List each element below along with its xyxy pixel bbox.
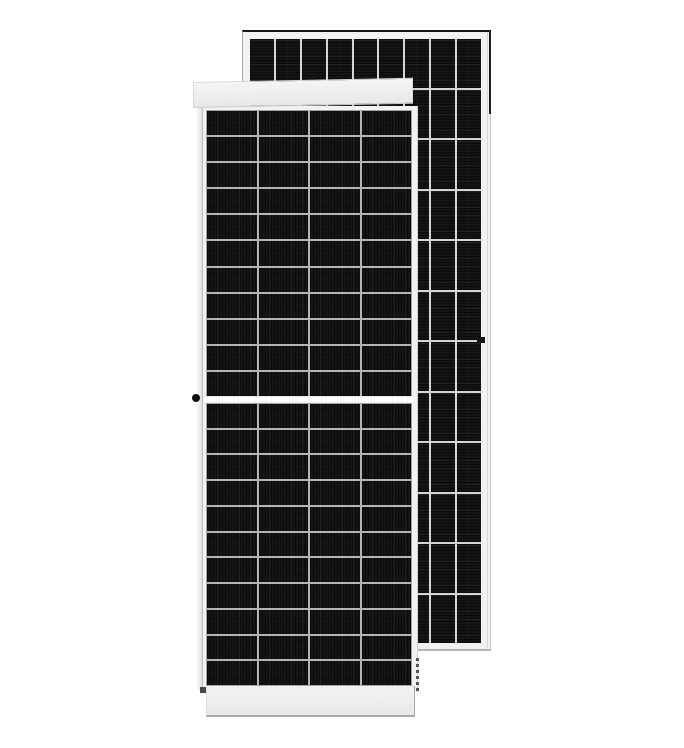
solar-cell (259, 268, 309, 292)
solar-cell (207, 372, 257, 396)
solar-cell (362, 404, 412, 428)
solar-cell (310, 294, 360, 318)
solar-cell (259, 241, 309, 265)
solar-cell (362, 241, 412, 265)
solar-cell (207, 636, 257, 660)
solar-cell (310, 346, 360, 370)
solar-cell (362, 558, 412, 582)
solar-cell (310, 241, 360, 265)
solar-cell (431, 140, 455, 189)
solar-cell (259, 507, 309, 531)
solar-cell (259, 636, 309, 660)
solar-cell (259, 584, 309, 608)
solar-cell (362, 215, 412, 239)
solar-cell (362, 346, 412, 370)
solar-cell (457, 443, 481, 492)
solar-cell (310, 636, 360, 660)
solar-cell (259, 558, 309, 582)
solar-cell (207, 558, 257, 582)
solar-cell (457, 191, 481, 240)
solar-cell (310, 268, 360, 292)
solar-cell (310, 558, 360, 582)
solar-cell (362, 533, 412, 557)
solar-cell (457, 393, 481, 442)
solar-cell (431, 90, 455, 139)
solar-cell (362, 584, 412, 608)
solar-cell (310, 215, 360, 239)
solar-cell (362, 430, 412, 454)
solar-cell (362, 636, 412, 660)
solar-cell (207, 455, 257, 479)
solar-cell (362, 268, 412, 292)
solar-cell (207, 268, 257, 292)
solar-cell (259, 372, 309, 396)
solar-cell (431, 292, 455, 341)
solar-cell (207, 241, 257, 265)
solar-cell (431, 342, 455, 391)
solar-cell (362, 189, 412, 213)
solar-cell (259, 346, 309, 370)
solar-cell (457, 292, 481, 341)
solar-cell (207, 430, 257, 454)
solar-cell (207, 404, 257, 428)
solar-cell (362, 294, 412, 318)
solar-cell (431, 241, 455, 290)
frame-shadow-dashes (416, 655, 419, 691)
solar-cell (207, 320, 257, 344)
solar-cell (259, 430, 309, 454)
solar-cell (310, 137, 360, 161)
solar-cell (362, 320, 412, 344)
solar-cell (431, 443, 455, 492)
solar-cell (259, 533, 309, 557)
solar-cell (259, 610, 309, 634)
solar-cell (310, 163, 360, 187)
solar-cell (431, 595, 455, 644)
center-divider (204, 396, 414, 403)
frame-corner-mark (200, 687, 206, 693)
solar-cell (259, 455, 309, 479)
solar-cell (457, 140, 481, 189)
solar-cell (310, 533, 360, 557)
solar-cell (207, 584, 257, 608)
solar-cell (310, 584, 360, 608)
solar-cell (259, 404, 309, 428)
solar-cell (362, 163, 412, 187)
solar-cell (362, 137, 412, 161)
front-bottom-rail (206, 686, 415, 717)
solar-cell (362, 455, 412, 479)
solar-cell (457, 39, 481, 88)
solar-cell (310, 610, 360, 634)
back-panel-mounting-mark (477, 337, 485, 343)
solar-cell (207, 610, 257, 634)
solar-cell (431, 494, 455, 543)
solar-cell (457, 90, 481, 139)
solar-cell (310, 189, 360, 213)
front-cell-grid-lower (206, 403, 412, 686)
solar-cell (259, 294, 309, 318)
solar-cell (207, 294, 257, 318)
solar-cell (362, 610, 412, 634)
solar-cell (457, 595, 481, 644)
solar-cell (259, 111, 309, 135)
solar-cell (207, 533, 257, 557)
solar-cell (259, 661, 309, 685)
solar-cell (259, 137, 309, 161)
solar-cell (207, 661, 257, 685)
solar-cell (362, 661, 412, 685)
solar-cell (207, 163, 257, 187)
solar-cell (259, 215, 309, 239)
solar-cell (362, 507, 412, 531)
front-top-rail (193, 78, 413, 108)
front-cell-grid-upper (206, 110, 412, 397)
solar-cell (207, 189, 257, 213)
solar-cell (431, 39, 455, 88)
solar-cell (259, 481, 309, 505)
solar-cell (457, 494, 481, 543)
solar-cell (310, 404, 360, 428)
solar-cell (259, 189, 309, 213)
solar-cell (431, 393, 455, 442)
product-image (0, 0, 684, 748)
solar-cell (207, 215, 257, 239)
solar-cell (362, 481, 412, 505)
solar-cell (310, 430, 360, 454)
solar-cell (431, 191, 455, 240)
solar-cell (310, 481, 360, 505)
solar-cell (457, 241, 481, 290)
solar-cell (310, 111, 360, 135)
solar-cell (259, 320, 309, 344)
back-panel-dark-right-edge (489, 30, 491, 114)
solar-cell (310, 320, 360, 344)
solar-cell (310, 507, 360, 531)
grounding-dot (192, 394, 200, 402)
solar-cell (207, 481, 257, 505)
solar-cell (310, 455, 360, 479)
solar-cell (362, 372, 412, 396)
solar-cell (207, 507, 257, 531)
solar-cell (207, 346, 257, 370)
solar-cell (259, 163, 309, 187)
solar-cell (457, 342, 481, 391)
solar-cell (457, 544, 481, 593)
solar-cell (362, 111, 412, 135)
solar-cell (310, 661, 360, 685)
solar-cell (207, 111, 257, 135)
solar-cell (431, 544, 455, 593)
solar-cell (207, 137, 257, 161)
solar-cell (310, 372, 360, 396)
